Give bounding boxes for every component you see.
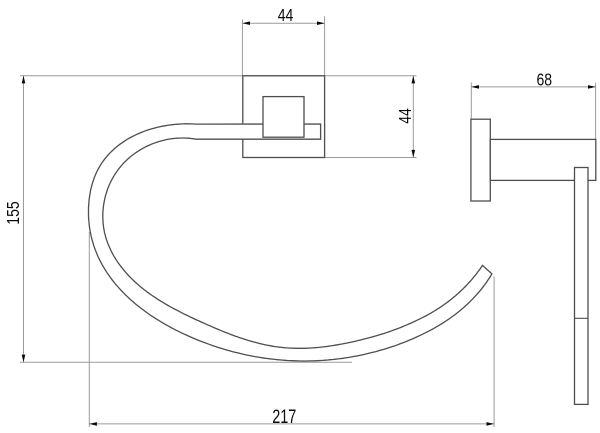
svg-text:155: 155	[3, 201, 23, 224]
svg-text:217: 217	[272, 406, 296, 427]
svg-text:44: 44	[278, 5, 294, 25]
svg-text:44: 44	[395, 108, 415, 124]
svg-text:68: 68	[536, 70, 552, 90]
